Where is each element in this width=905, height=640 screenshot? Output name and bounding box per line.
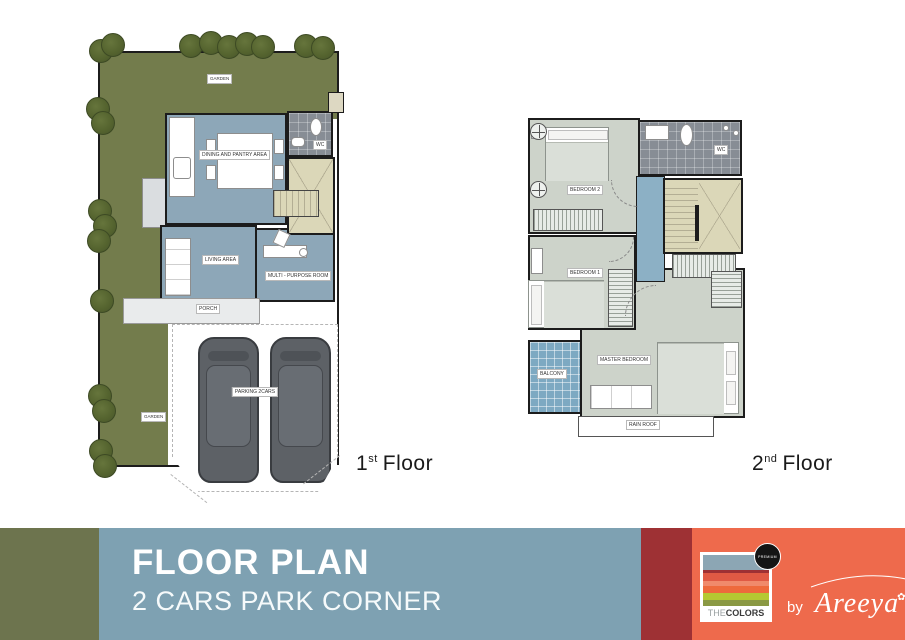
shower-head-icon [733, 130, 739, 136]
garden-label: GARDEN [207, 74, 232, 84]
dining-label: DINING AND PANTRY AREA [199, 150, 270, 160]
washbasin-icon [291, 137, 305, 147]
areeya-byline: by Areeya✿ [787, 588, 905, 620]
parking-label: PARKING 2CARS [232, 387, 278, 397]
tree-icon [251, 35, 275, 59]
dining-chair [206, 165, 216, 180]
fan-icon [530, 123, 547, 140]
staircase-winder-f2 [699, 183, 740, 249]
shower-head-icon [723, 125, 729, 131]
multi-purpose-label: MULTI - PURPOSE ROOM [265, 271, 331, 281]
banner-blue-block: FLOOR PLAN 2 CARS PARK CORNER [99, 528, 641, 640]
master-bedroom-label: MASTER BEDROOM [597, 355, 651, 365]
tree-icon [92, 399, 116, 423]
bedroom2-label: BEDROOM 2 [567, 185, 603, 195]
kitchen-sink [173, 157, 191, 179]
multi-purpose-room [255, 228, 335, 302]
desk-bedroom1 [531, 248, 543, 274]
bedroom1-label: BEDROOM 1 [567, 268, 603, 278]
banner-olive-block [0, 528, 99, 640]
wardrobe-bedroom2 [533, 209, 603, 231]
banner-subtitle: 2 CARS PARK CORNER [132, 586, 442, 617]
tree-icon [90, 289, 114, 313]
logo-wordmark: THECOLORS [703, 606, 769, 619]
premium-badge: PREMIUM [754, 543, 781, 570]
first-floor-plan: PARKING 2CARS GARDEN GARDEN DINING AND P… [95, 45, 345, 497]
tree-icon [91, 111, 115, 135]
logo-stripe [703, 593, 769, 600]
bed-bedroom2 [545, 127, 609, 181]
banner-title: FLOOR PLAN [132, 543, 369, 583]
second-floor-caption: 2ndFloor [752, 452, 833, 476]
dining-table [217, 133, 273, 189]
cabinet-master [590, 385, 652, 409]
entry-porch [328, 92, 344, 113]
thecolors-logo: THECOLORS PREMIUM [700, 552, 772, 622]
tree-icon [87, 229, 111, 253]
bed-bedroom1 [528, 280, 604, 328]
wc-label-f2: WC [714, 145, 728, 155]
second-floor-plan: BEDROOM 2 WC BEDROOM 1 MASTER BEDROOM BA… [525, 113, 747, 443]
desk-chair [299, 248, 308, 257]
bed-master [657, 342, 739, 414]
logo-stripe [703, 573, 769, 581]
terrace-porch [123, 298, 260, 324]
first-floor-caption: 1stFloor [356, 452, 433, 476]
car-icon [198, 337, 259, 483]
wc-label-f1: WC [313, 140, 327, 150]
bottom-banner: FLOOR PLAN 2 CARS PARK CORNER THECOLORS … [0, 528, 905, 640]
staircase-run-f2 [665, 183, 698, 249]
balcony-label: BALCONY [537, 369, 567, 379]
tree-icon [101, 33, 125, 57]
tree-icon [311, 36, 335, 60]
car-icon [270, 337, 331, 483]
fan-icon [530, 181, 547, 198]
living-label: LIVING AREA [202, 255, 239, 265]
staircase-run-f1 [273, 190, 319, 217]
washbasin-icon [645, 125, 669, 140]
flower-icon: ✿ [897, 592, 905, 603]
sofa [165, 238, 191, 296]
swoosh-icon [809, 574, 905, 590]
parking-area: PARKING 2CARS [172, 324, 338, 492]
areeya-brand: Areeya✿ [815, 588, 905, 620]
stair-center-wall [695, 205, 699, 241]
rain-roof-label: RAIN ROOF [626, 420, 660, 430]
wardrobe-master [711, 271, 742, 308]
dining-chair [274, 139, 284, 154]
tree-icon [93, 454, 117, 478]
dining-chair [274, 165, 284, 180]
porch-label: PORCH [196, 304, 220, 314]
toilet-icon [310, 118, 322, 136]
garden-label: GARDEN [141, 412, 166, 422]
hallway [636, 176, 665, 282]
banner-maroon-block [641, 528, 692, 640]
banner-orange-block: THECOLORS PREMIUM by Areeya✿ [692, 528, 905, 640]
toilet-icon [680, 124, 693, 146]
logo-stripe [703, 586, 769, 593]
